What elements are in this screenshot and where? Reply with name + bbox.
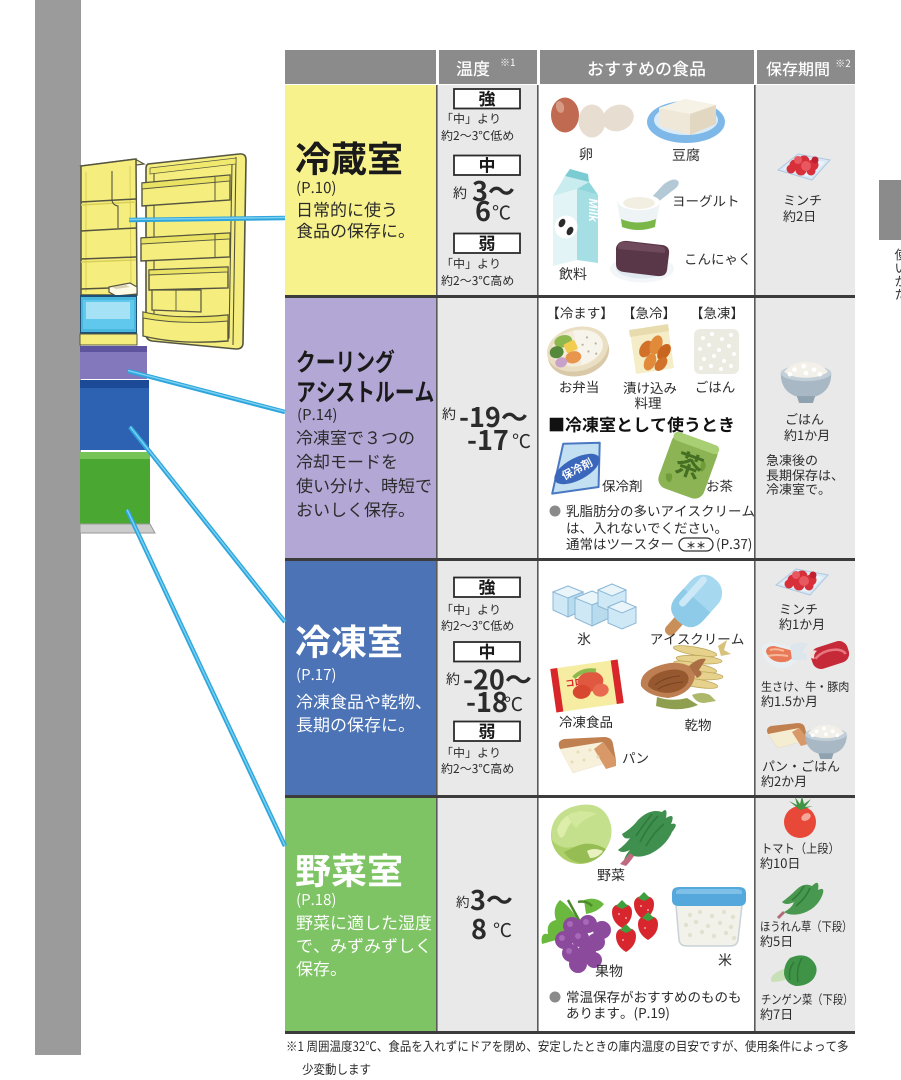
- svg-text:Milk: Milk: [586, 198, 600, 223]
